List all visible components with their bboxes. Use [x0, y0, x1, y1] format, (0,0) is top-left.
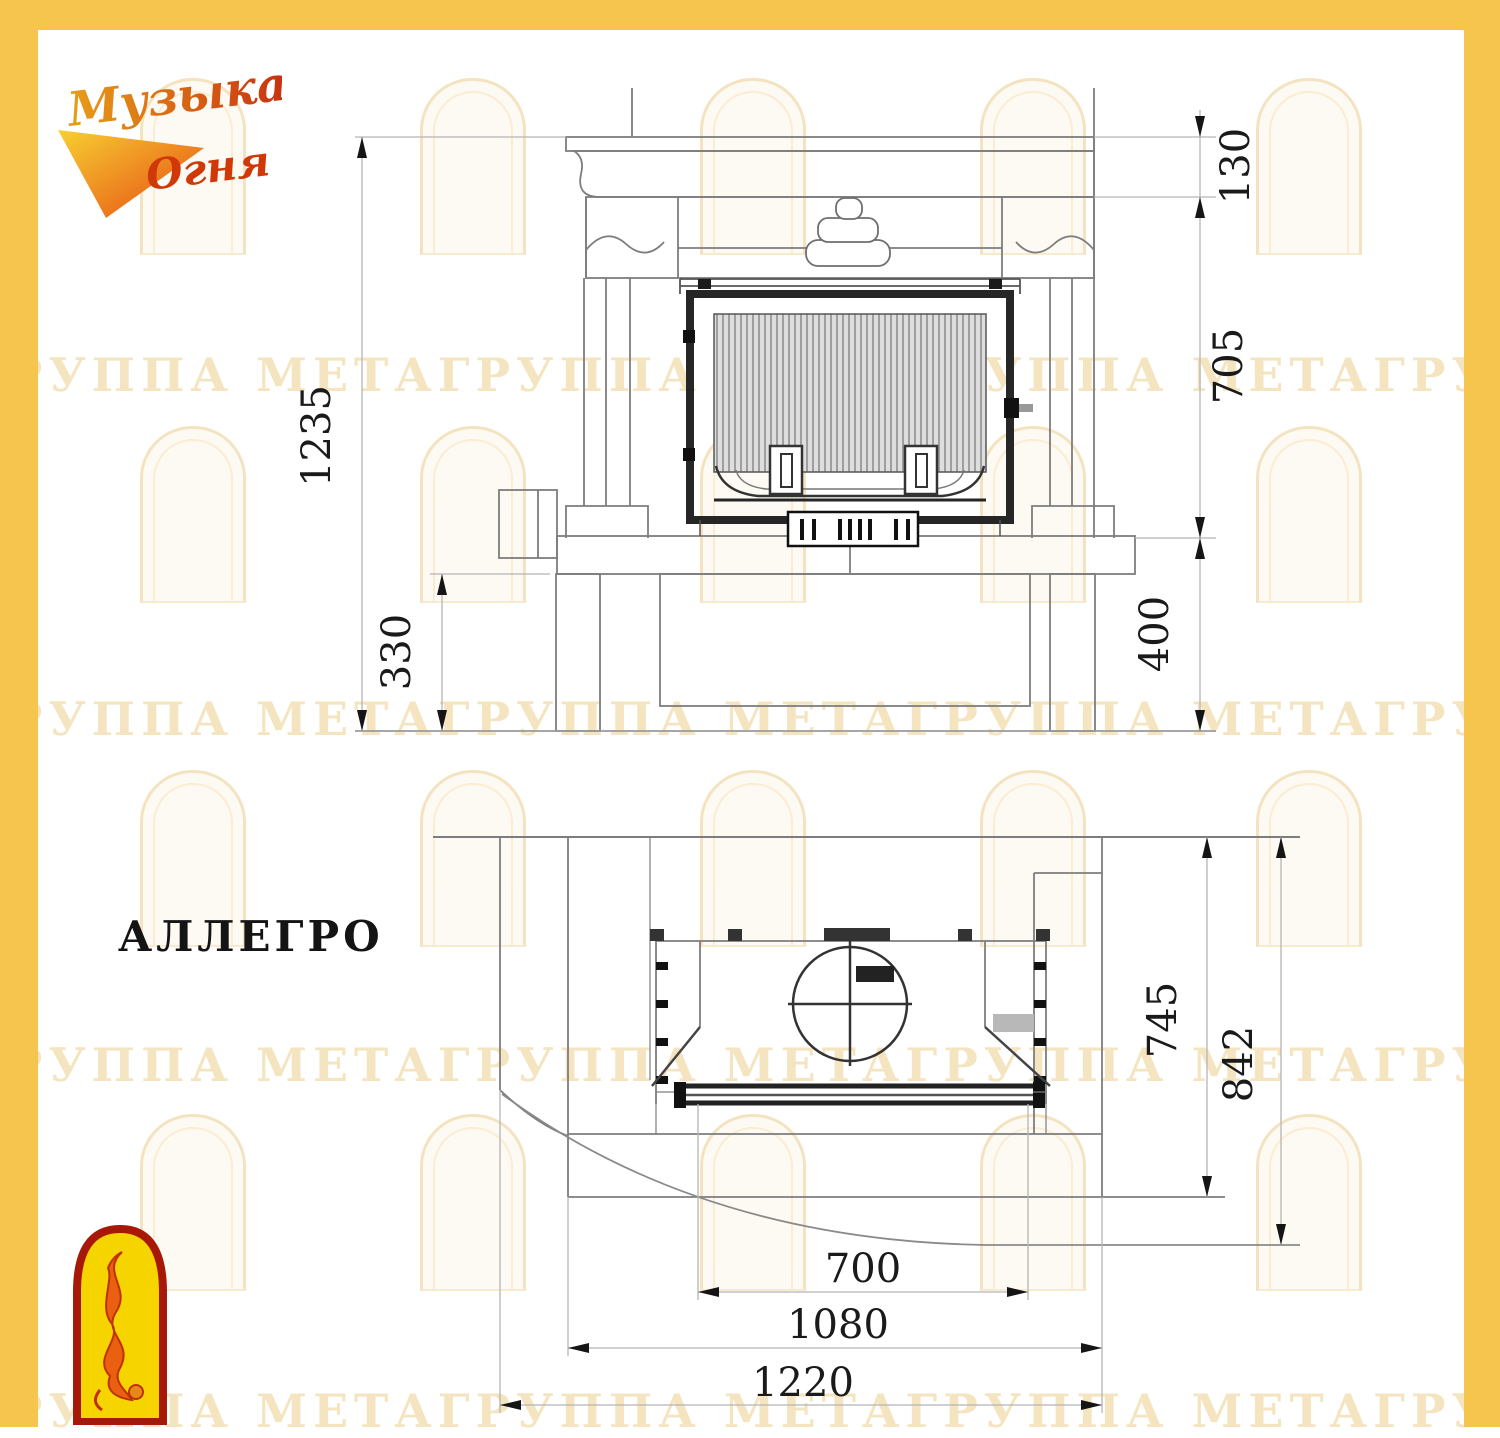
wall-tab — [993, 1014, 1034, 1032]
pilaster-cap-left — [586, 197, 678, 278]
door-handle — [1004, 398, 1019, 418]
flue-outlet — [788, 941, 912, 1066]
andiron-left — [770, 446, 802, 494]
dim-total-depth: 842 — [1216, 1026, 1262, 1102]
pilaster-left — [584, 278, 630, 506]
base-leg-left — [556, 574, 600, 731]
dim-opening-height: 705 — [1206, 328, 1252, 404]
firebird-emblem — [70, 1220, 170, 1425]
dimension-arrows — [357, 116, 1286, 1410]
page-border-right — [1464, 0, 1500, 1427]
pilaster-right — [1050, 278, 1072, 506]
dim-body-width: 1080 — [787, 1302, 889, 1348]
bench-end-block — [499, 490, 557, 558]
dim-mantel-height: 130 — [1213, 128, 1259, 204]
andiron-right — [905, 446, 937, 494]
pilaster-cap-right — [1002, 197, 1094, 278]
flare-left — [652, 1027, 700, 1086]
door-handle-tip — [1019, 404, 1033, 412]
dome-sides — [700, 941, 985, 1027]
door-hinge — [683, 330, 695, 343]
dim-firebox-width: 700 — [825, 1246, 901, 1292]
plinth-left — [566, 506, 648, 538]
model-name-label: АЛЛЕГРО — [118, 912, 384, 961]
page-border-left — [0, 0, 38, 1427]
flare-right — [985, 1027, 1050, 1086]
base-panel — [660, 574, 1030, 706]
dome-tabs — [650, 928, 1050, 941]
page: { "page": { "border_color": "#f6c54d", "… — [0, 0, 1500, 1427]
dimensions: 1235 330 130 705 400 745 842 700 1080 12… — [294, 110, 1286, 1413]
glass — [714, 314, 986, 472]
dim-hearth-depth: 745 — [1140, 982, 1186, 1058]
keystone — [806, 198, 890, 266]
dim-plinth-height: 330 — [374, 614, 420, 690]
brand-logo: Музыка Огня — [52, 68, 282, 228]
firebox-insert-front — [680, 279, 1033, 546]
hearth-curve — [502, 1094, 1300, 1245]
left-edge — [500, 837, 568, 1136]
mantel-moulding — [574, 151, 1094, 197]
page-border-top — [0, 0, 1500, 30]
dim-base-height: 400 — [1132, 596, 1178, 672]
front-frame — [656, 1082, 1046, 1108]
frame-stubs — [656, 1104, 1046, 1134]
hinge-mark — [698, 279, 711, 289]
dim-total-width: 1220 — [752, 1360, 854, 1406]
base-leg-right — [1050, 574, 1095, 731]
dim-total-height: 1235 — [294, 385, 340, 487]
logo-text-line1: Музыка — [63, 68, 282, 138]
plinth-right — [1032, 506, 1114, 538]
emblem-dot — [129, 1385, 143, 1399]
mantel-top-slab — [566, 137, 1094, 151]
hinge-mark — [989, 279, 1002, 289]
vent-grille — [788, 512, 918, 546]
door-hinge — [683, 448, 695, 461]
